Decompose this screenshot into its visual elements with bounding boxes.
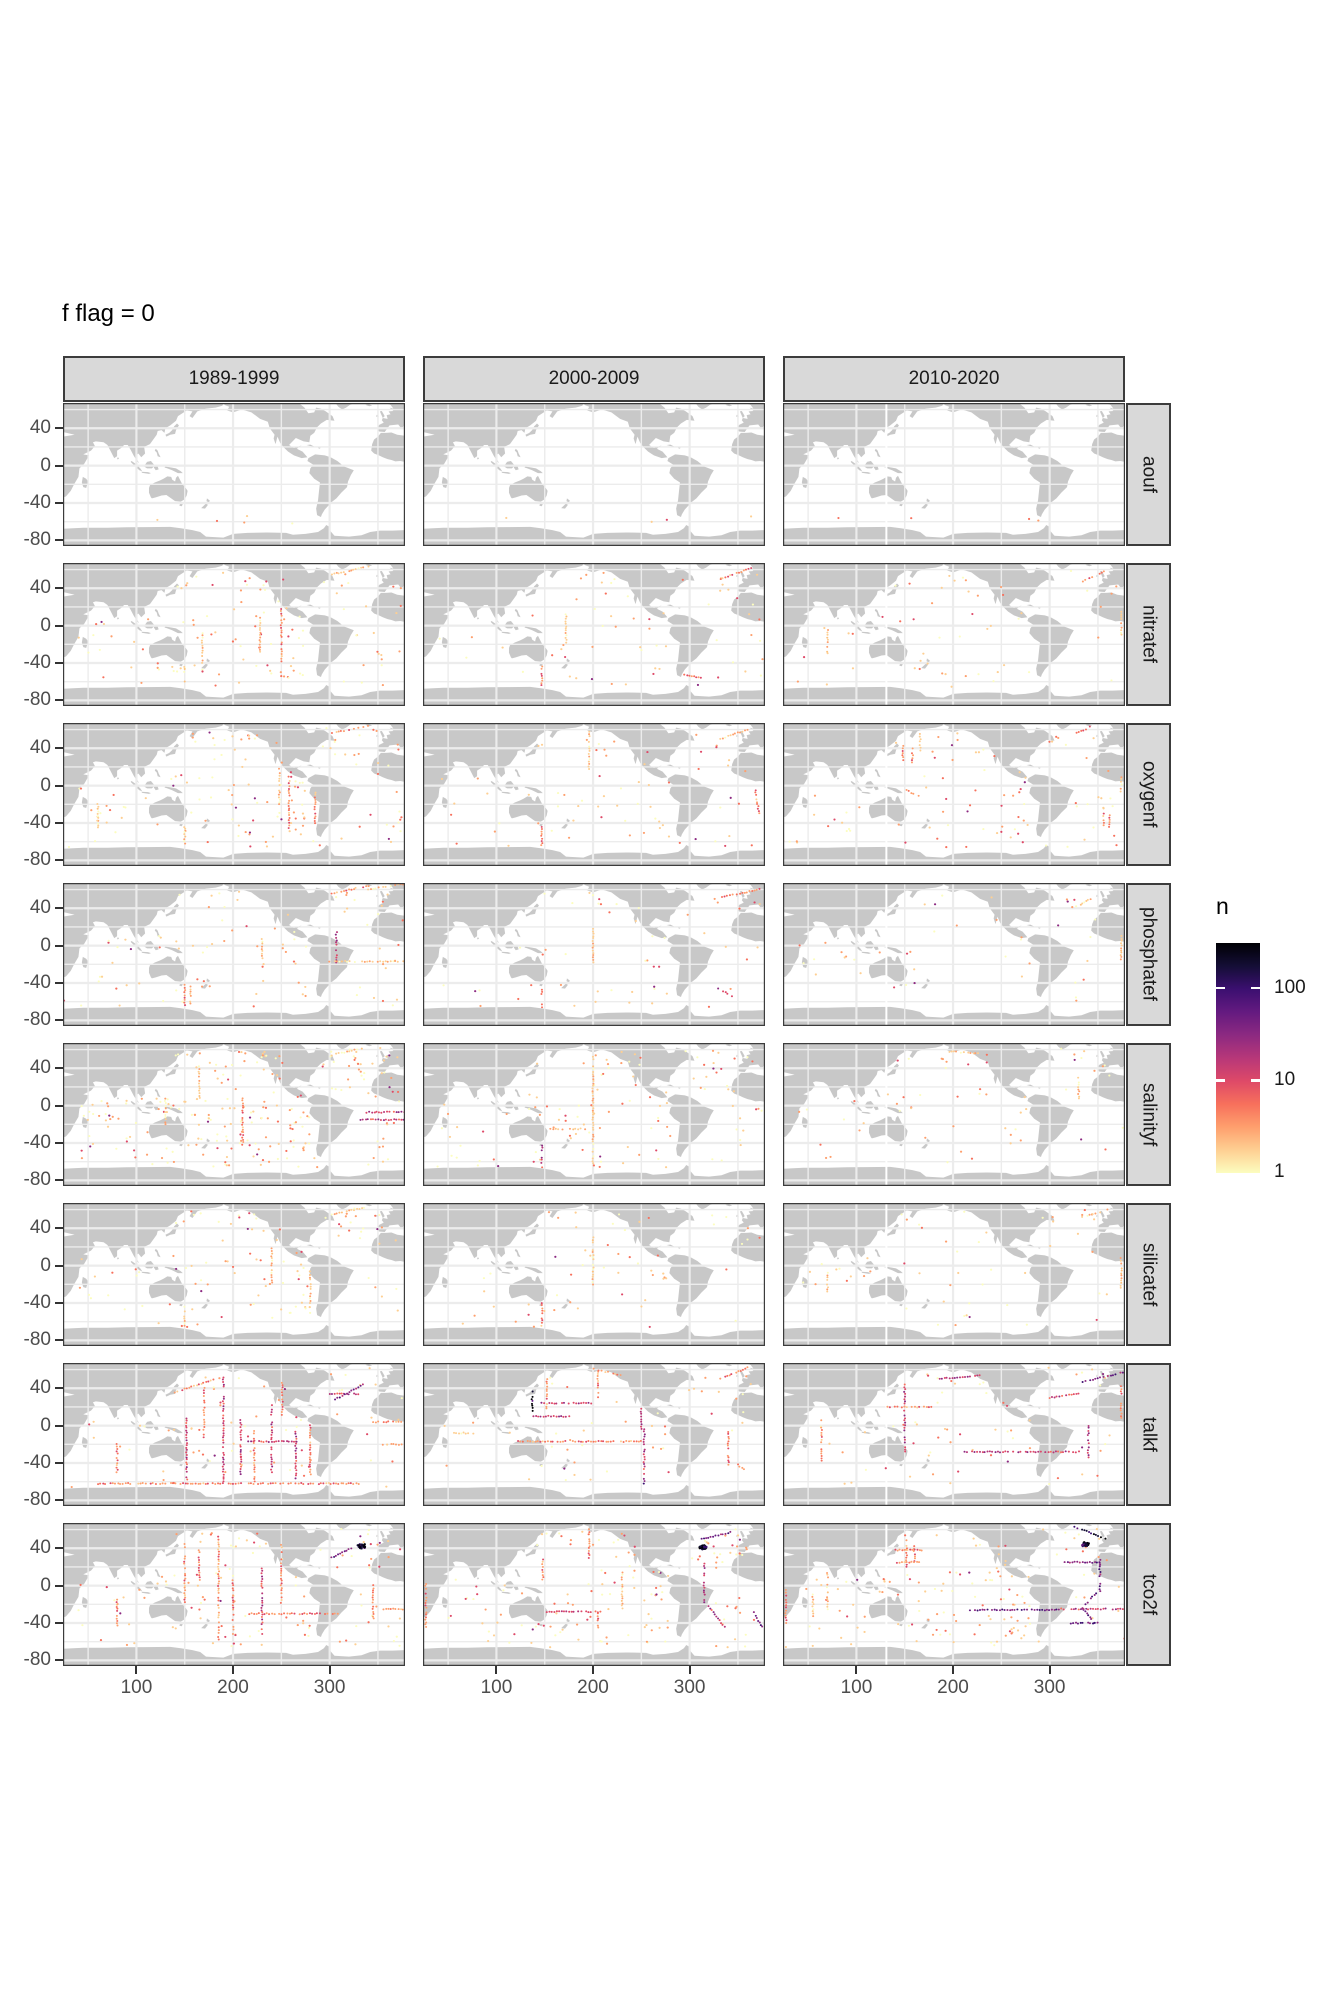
map-panel-phosphatef-1989-1999 <box>63 883 405 1026</box>
x-axis-tick <box>1049 1666 1051 1674</box>
y-axis-label: 0 <box>5 1575 51 1597</box>
y-axis-tick <box>55 539 63 541</box>
y-axis-tick <box>55 1659 63 1661</box>
map-panel-nitratef-2000-2009 <box>423 563 765 706</box>
y-axis-tick <box>55 822 63 824</box>
map-panel-salinityf-1989-1999 <box>63 1043 405 1186</box>
y-axis-label: -40 <box>5 492 51 514</box>
y-axis-label: 40 <box>5 1217 51 1239</box>
y-axis-label: 0 <box>5 935 51 957</box>
world-map <box>63 723 405 866</box>
facet-column-label: 1989-1999 <box>189 368 280 390</box>
map-panel-nitratef-1989-1999 <box>63 563 405 706</box>
plot-title: f flag = 0 <box>62 300 155 328</box>
y-axis-tick <box>55 1019 63 1021</box>
y-axis-tick <box>55 1425 63 1427</box>
map-panel-aouf-2010-2020 <box>783 403 1125 546</box>
y-axis-tick <box>55 1142 63 1144</box>
figure: f flag = 0 1989-19992000-20092010-2020 a… <box>0 0 1344 2016</box>
map-panel-silicatef-1989-1999 <box>63 1203 405 1346</box>
y-axis-tick <box>55 1302 63 1304</box>
y-axis-tick <box>55 1462 63 1464</box>
map-panel-tco2f-1989-1999 <box>63 1523 405 1666</box>
x-axis-label: 100 <box>461 1677 531 1699</box>
x-axis-label: 100 <box>101 1677 171 1699</box>
map-panel-talkf-1989-1999 <box>63 1363 405 1506</box>
y-axis-label: -40 <box>5 1132 51 1154</box>
y-axis-tick <box>55 907 63 909</box>
world-map <box>423 563 765 706</box>
map-panel-tco2f-2010-2020 <box>783 1523 1125 1666</box>
world-map <box>783 563 1125 706</box>
legend-label-100: 100 <box>1274 977 1306 999</box>
x-axis-label: 100 <box>821 1677 891 1699</box>
facet-column-label: 2010-2020 <box>909 368 1000 390</box>
y-axis-label: 40 <box>5 1057 51 1079</box>
y-axis-label: -80 <box>5 1649 51 1671</box>
y-axis-tick <box>55 1547 63 1549</box>
y-axis-label: -80 <box>5 1489 51 1511</box>
y-axis-label: 0 <box>5 1415 51 1437</box>
world-map <box>783 723 1125 866</box>
world-map <box>423 1523 765 1666</box>
y-axis-tick <box>55 662 63 664</box>
y-axis-tick <box>55 1227 63 1229</box>
world-map <box>783 883 1125 1026</box>
facet-row-label: talkf <box>1138 1417 1160 1452</box>
world-map <box>63 1043 405 1186</box>
y-axis-label: 40 <box>5 1377 51 1399</box>
map-panel-nitratef-2010-2020 <box>783 563 1125 706</box>
y-axis-tick <box>55 502 63 504</box>
map-panel-phosphatef-2000-2009 <box>423 883 765 1026</box>
y-axis-tick <box>55 1585 63 1587</box>
facet-row-label: oxygenf <box>1138 761 1160 828</box>
map-panel-silicatef-2000-2009 <box>423 1203 765 1346</box>
world-map <box>63 403 405 546</box>
y-axis-tick <box>55 747 63 749</box>
world-map <box>63 563 405 706</box>
map-panel-tco2f-2000-2009 <box>423 1523 765 1666</box>
y-axis-tick <box>55 859 63 861</box>
y-axis-label: -40 <box>5 1452 51 1474</box>
facet-row-label: tco2f <box>1138 1574 1160 1615</box>
y-axis-label: -80 <box>5 849 51 871</box>
y-axis-label: 40 <box>5 1537 51 1559</box>
y-axis-tick <box>55 1387 63 1389</box>
y-axis-label: 40 <box>5 577 51 599</box>
legend-colorbar <box>1216 943 1260 1173</box>
map-panel-talkf-2000-2009 <box>423 1363 765 1506</box>
map-panel-silicatef-2010-2020 <box>783 1203 1125 1346</box>
facet-column-header: 2010-2020 <box>783 356 1125 402</box>
world-map <box>63 1363 405 1506</box>
map-panel-oxygenf-2010-2020 <box>783 723 1125 866</box>
world-map <box>63 1523 405 1666</box>
world-map <box>63 883 405 1026</box>
facet-row-label: nitratef <box>1138 605 1160 663</box>
map-panel-salinityf-2000-2009 <box>423 1043 765 1186</box>
map-panel-salinityf-2010-2020 <box>783 1043 1125 1186</box>
x-axis-label: 300 <box>295 1677 365 1699</box>
y-axis-label: -80 <box>5 1169 51 1191</box>
facet-row-label: silicatef <box>1138 1243 1160 1306</box>
world-map <box>63 1203 405 1346</box>
facet-row-strip: tco2f <box>1126 1523 1171 1666</box>
y-axis-tick <box>55 1622 63 1624</box>
facet-row-strip: salinityf <box>1126 1043 1171 1186</box>
legend-title: n <box>1216 893 1229 920</box>
x-axis-tick <box>689 1666 691 1674</box>
world-map <box>783 1203 1125 1346</box>
x-axis-tick <box>232 1666 234 1674</box>
legend-label-1: 1 <box>1274 1161 1285 1183</box>
y-axis-label: 0 <box>5 455 51 477</box>
world-map <box>783 1523 1125 1666</box>
y-axis-tick <box>55 465 63 467</box>
x-axis-label: 300 <box>1015 1677 1085 1699</box>
y-axis-label: -40 <box>5 652 51 674</box>
y-axis-label: -40 <box>5 1612 51 1634</box>
x-axis-tick <box>952 1666 954 1674</box>
map-panel-aouf-2000-2009 <box>423 403 765 546</box>
y-axis-label: -80 <box>5 1329 51 1351</box>
y-axis-label: 40 <box>5 417 51 439</box>
world-map <box>423 723 765 866</box>
facet-column-header: 2000-2009 <box>423 356 765 402</box>
legend-label-10: 10 <box>1274 1069 1295 1091</box>
legend-tick <box>1216 987 1225 989</box>
legend-tick <box>1251 1079 1260 1081</box>
y-axis-tick <box>55 1339 63 1341</box>
facet-row-label: salinityf <box>1138 1083 1160 1146</box>
x-axis-label: 200 <box>198 1677 268 1699</box>
x-axis-tick <box>329 1666 331 1674</box>
world-map <box>423 403 765 546</box>
map-panel-aouf-1989-1999 <box>63 403 405 546</box>
facet-row-label: aouf <box>1138 456 1160 493</box>
y-axis-tick <box>55 1067 63 1069</box>
y-axis-tick <box>55 945 63 947</box>
world-map <box>423 1363 765 1506</box>
world-map <box>783 1363 1125 1506</box>
world-map <box>423 1203 765 1346</box>
world-map <box>783 1043 1125 1186</box>
facet-row-strip: aouf <box>1126 403 1171 546</box>
facet-row-strip: phosphatef <box>1126 883 1171 1026</box>
facet-column-label: 2000-2009 <box>549 368 640 390</box>
facet-column-header: 1989-1999 <box>63 356 405 402</box>
y-axis-label: -40 <box>5 972 51 994</box>
y-axis-label: 40 <box>5 897 51 919</box>
y-axis-tick <box>55 587 63 589</box>
y-axis-tick <box>55 1265 63 1267</box>
y-axis-label: -80 <box>5 689 51 711</box>
y-axis-label: 0 <box>5 775 51 797</box>
y-axis-tick <box>55 785 63 787</box>
facet-row-strip: nitratef <box>1126 563 1171 706</box>
y-axis-tick <box>55 1105 63 1107</box>
x-axis-tick <box>135 1666 137 1674</box>
y-axis-tick <box>55 625 63 627</box>
y-axis-tick <box>55 982 63 984</box>
map-panel-phosphatef-2010-2020 <box>783 883 1125 1026</box>
legend-tick <box>1216 1079 1225 1081</box>
y-axis-label: 40 <box>5 737 51 759</box>
x-axis-tick <box>592 1666 594 1674</box>
facet-row-strip: talkf <box>1126 1363 1171 1506</box>
legend-tick <box>1251 987 1260 989</box>
world-map <box>783 403 1125 546</box>
y-axis-label: 0 <box>5 1095 51 1117</box>
map-panel-talkf-2010-2020 <box>783 1363 1125 1506</box>
facet-row-label: phosphatef <box>1138 907 1160 1001</box>
world-map <box>423 1043 765 1186</box>
facet-row-strip: silicatef <box>1126 1203 1171 1346</box>
y-axis-tick <box>55 1499 63 1501</box>
y-axis-label: -80 <box>5 1009 51 1031</box>
world-map <box>423 883 765 1026</box>
x-axis-label: 300 <box>655 1677 725 1699</box>
map-panel-oxygenf-1989-1999 <box>63 723 405 866</box>
facet-row-strip: oxygenf <box>1126 723 1171 866</box>
y-axis-label: 0 <box>5 1255 51 1277</box>
y-axis-label: -80 <box>5 529 51 551</box>
map-panel-oxygenf-2000-2009 <box>423 723 765 866</box>
x-axis-tick <box>495 1666 497 1674</box>
x-axis-tick <box>855 1666 857 1674</box>
y-axis-label: 0 <box>5 615 51 637</box>
y-axis-label: -40 <box>5 1292 51 1314</box>
y-axis-tick <box>55 699 63 701</box>
x-axis-label: 200 <box>558 1677 628 1699</box>
y-axis-tick <box>55 1179 63 1181</box>
y-axis-label: -40 <box>5 812 51 834</box>
y-axis-tick <box>55 427 63 429</box>
x-axis-label: 200 <box>918 1677 988 1699</box>
